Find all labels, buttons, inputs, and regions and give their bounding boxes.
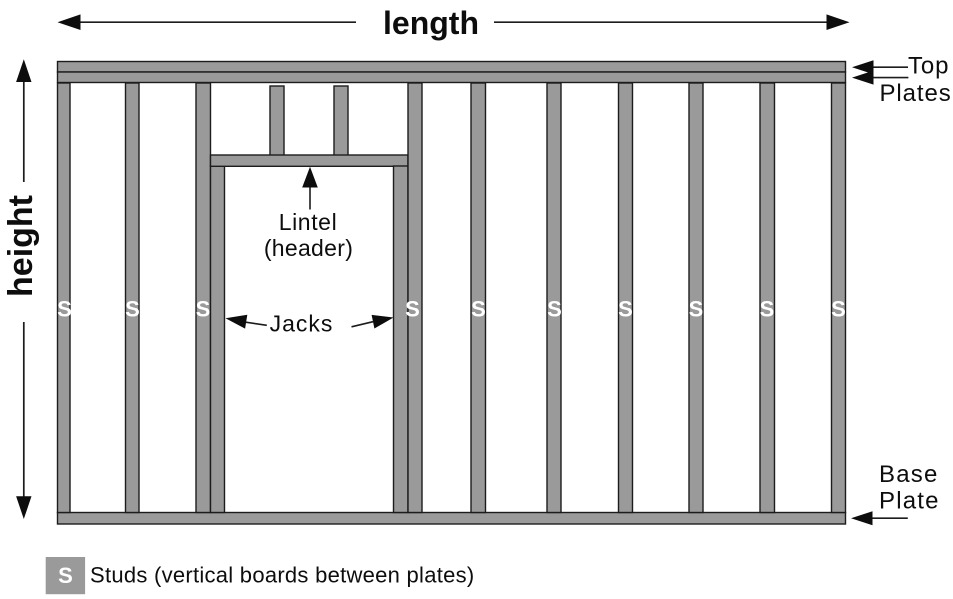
svg-text:S: S [471,297,486,322]
svg-text:S: S [57,297,72,322]
svg-text:Studs (vertical boards between: Studs (vertical boards between plates) [90,563,474,588]
svg-text:S: S [831,297,846,322]
svg-text:Top: Top [908,53,949,80]
svg-text:Jacks: Jacks [270,311,334,337]
svg-text:Plate: Plate [879,487,940,514]
svg-text:Base: Base [879,461,939,488]
svg-text:S: S [196,297,211,322]
svg-text:Lintel: Lintel [279,209,338,235]
svg-text:S: S [405,297,420,322]
svg-text:S: S [618,297,633,322]
svg-text:S: S [689,297,704,322]
svg-text:S: S [125,297,140,322]
svg-text:S: S [58,563,73,588]
svg-text:Plates: Plates [880,80,952,107]
svg-text:S: S [760,297,775,322]
svg-text:(header): (header) [264,235,353,261]
svg-text:length: length [383,5,479,41]
svg-text:S: S [547,297,562,322]
svg-text:height: height [2,195,40,297]
